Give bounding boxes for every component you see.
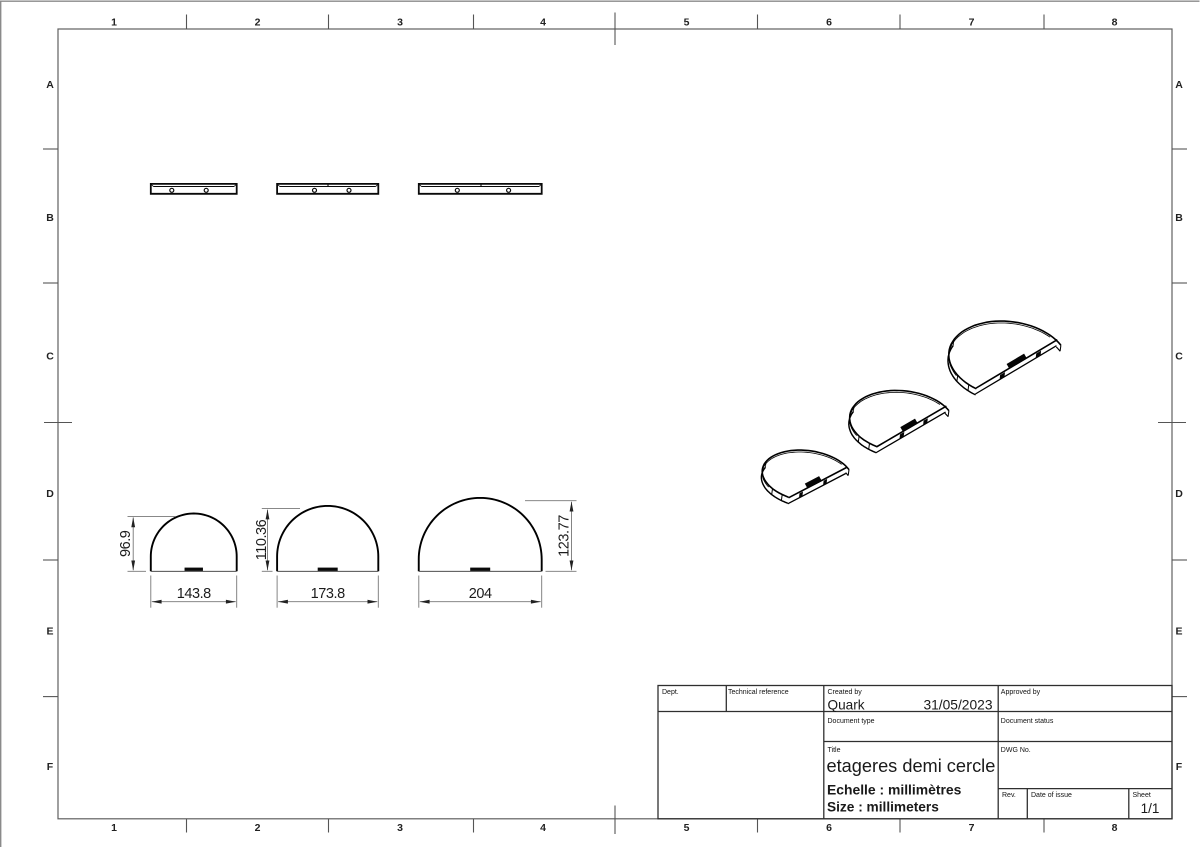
svg-text:96.9: 96.9 xyxy=(118,530,134,557)
svg-text:Echelle : millimètres: Echelle : millimètres xyxy=(827,782,962,798)
svg-text:Document status: Document status xyxy=(1001,718,1054,725)
svg-text:D: D xyxy=(46,488,54,500)
svg-text:Rev.: Rev. xyxy=(1002,792,1016,799)
svg-text:4: 4 xyxy=(540,822,546,834)
svg-text:Document type: Document type xyxy=(828,718,875,725)
svg-text:Technical reference: Technical reference xyxy=(728,689,789,696)
svg-text:DWG No.: DWG No. xyxy=(1001,747,1031,754)
svg-text:etageres demi cercle: etageres demi cercle xyxy=(827,756,996,776)
svg-text:3: 3 xyxy=(397,822,403,834)
svg-text:2: 2 xyxy=(255,822,261,834)
svg-text:A: A xyxy=(1175,79,1183,91)
svg-text:F: F xyxy=(1176,761,1183,773)
svg-text:143.8: 143.8 xyxy=(177,586,211,602)
svg-text:6: 6 xyxy=(826,822,832,834)
svg-text:B: B xyxy=(1175,212,1183,224)
svg-text:7: 7 xyxy=(969,822,975,834)
svg-text:A: A xyxy=(46,79,54,91)
svg-text:C: C xyxy=(46,350,54,362)
svg-text:F: F xyxy=(47,761,54,773)
svg-text:4: 4 xyxy=(540,17,546,29)
svg-text:C: C xyxy=(1175,350,1183,362)
svg-text:E: E xyxy=(46,625,53,637)
svg-text:E: E xyxy=(1175,625,1182,637)
svg-text:8: 8 xyxy=(1112,17,1118,29)
svg-text:1: 1 xyxy=(111,822,117,834)
svg-text:31/05/2023: 31/05/2023 xyxy=(923,698,992,713)
svg-text:110.36: 110.36 xyxy=(254,519,270,560)
svg-text:Approved by: Approved by xyxy=(1001,689,1041,696)
svg-text:Sheet: Sheet xyxy=(1133,792,1151,799)
svg-text:8: 8 xyxy=(1112,822,1118,834)
svg-text:3: 3 xyxy=(397,17,403,29)
svg-text:6: 6 xyxy=(826,17,832,29)
svg-text:Size : millimeters: Size : millimeters xyxy=(827,800,939,815)
svg-text:7: 7 xyxy=(969,17,975,29)
svg-text:Dept.: Dept. xyxy=(662,689,679,696)
svg-text:173.8: 173.8 xyxy=(311,586,345,602)
svg-text:D: D xyxy=(1175,488,1183,500)
svg-text:123.77: 123.77 xyxy=(557,515,573,557)
svg-text:B: B xyxy=(46,212,54,224)
svg-text:Title: Title xyxy=(828,747,841,754)
svg-text:204: 204 xyxy=(469,586,492,602)
svg-text:1: 1 xyxy=(111,17,117,29)
svg-text:5: 5 xyxy=(684,17,690,29)
svg-text:Quark: Quark xyxy=(828,698,865,713)
svg-text:5: 5 xyxy=(684,822,690,834)
svg-text:Created by: Created by xyxy=(828,689,863,696)
svg-text:Date of issue: Date of issue xyxy=(1031,792,1072,799)
svg-text:1/1: 1/1 xyxy=(1141,801,1160,816)
svg-text:2: 2 xyxy=(255,17,261,29)
